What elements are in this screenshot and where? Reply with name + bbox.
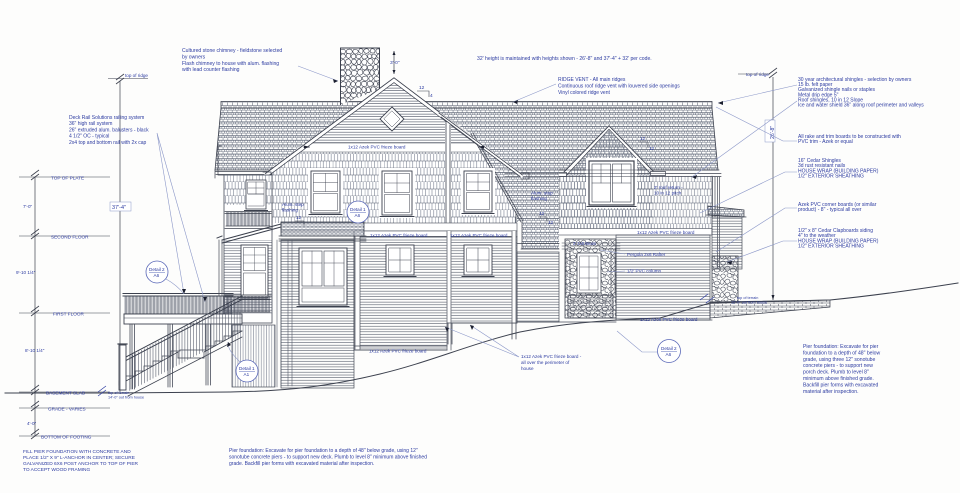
svg-text:material after inspection.: material after inspection. [803, 389, 859, 395]
svg-text:1x12 Azek PVC frieze board: 1x12 Azek PVC frieze board [450, 233, 508, 238]
svg-text:SECOND FLOOR: SECOND FLOOR [51, 235, 89, 240]
svg-text:Alum. step: Alum. step [531, 191, 553, 196]
svg-text:A6: A6 [355, 213, 361, 218]
svg-text:4: 4 [430, 93, 433, 99]
svg-text:house: house [521, 366, 534, 371]
svg-text:top of ridge: top of ridge [746, 72, 769, 77]
svg-text:flashing: flashing [531, 196, 547, 201]
svg-text:Detail 2: Detail 2 [149, 267, 165, 272]
svg-text:Continuous roof ridge vent wit: Continuous roof ridge vent with louvered… [558, 83, 680, 89]
svg-text:Backfill pier forms with excav: Backfill pier forms with excavated [803, 382, 878, 388]
svg-text:4'-0": 4'-0" [27, 421, 37, 426]
svg-text:1x12 Azek PVC frieze board: 1x12 Azek PVC frieze board [637, 230, 695, 235]
svg-text:with lead counter flashing: with lead counter flashing [182, 67, 240, 73]
svg-text:minimum above finished grade.: minimum above finished grade. [803, 376, 874, 382]
svg-text:TO ACCEPT WOOD FRAMING: TO ACCEPT WOOD FRAMING [23, 467, 91, 473]
svg-text:product) - 8" - typical all ov: product) - 8" - typical all over [798, 207, 862, 213]
svg-text:3'-0": 3'-0" [390, 60, 400, 66]
svg-text:37'-4": 37'-4" [112, 205, 126, 211]
svg-text:Detail 1: Detail 1 [239, 366, 255, 371]
svg-text:A6: A6 [154, 273, 160, 278]
svg-text:top of terrain: top of terrain [108, 391, 129, 395]
svg-text:10 in 12 pitch: 10 in 12 pitch [654, 191, 682, 196]
svg-text:Detail 1: Detail 1 [350, 207, 366, 212]
svg-text:concrete piers - to support ne: concrete piers - to support new [803, 363, 873, 369]
svg-text:grade, using three 12" sonotub: grade, using three 12" sonotube [803, 357, 875, 363]
svg-text:A1: A1 [244, 372, 250, 377]
svg-text:1x12 Azek PVC frieze board: 1x12 Azek PVC frieze board [370, 233, 428, 238]
svg-text:12'-0" out from house: 12'-0" out from house [731, 301, 767, 305]
svg-text:36" high rail system: 36" high rail system [69, 121, 112, 127]
svg-text:PLACE 1/2" X 9" L-ANCHOR IN CE: PLACE 1/2" X 9" L-ANCHOR IN CENTER; SECU… [23, 455, 135, 461]
svg-text:2' 2x6 Beam: 2' 2x6 Beam [573, 241, 597, 246]
svg-text:Ice and water shield 36" along: Ice and water shield 36" along roof peri… [798, 103, 924, 109]
svg-text:Vinyl colored ridge vent: Vinyl colored ridge vent [558, 90, 610, 96]
svg-text:1x12 Azek PVC frieze board: 1x12 Azek PVC frieze board [348, 145, 406, 150]
svg-text:3' roof return -: 3' roof return - [654, 185, 683, 190]
svg-text:porch deck. Plumb to level 8": porch deck. Plumb to level 8" [803, 370, 869, 376]
svg-text:PVC trim - Azek or equal: PVC trim - Azek or equal [798, 139, 853, 145]
svg-text:1/2' PVC column: 1/2' PVC column [627, 269, 662, 274]
svg-text:Deck Rail Solutions railing sy: Deck Rail Solutions railing system [69, 115, 144, 121]
svg-text:FILL PIER FOUNDATION WITH CONC: FILL PIER FOUNDATION WITH CONCRETE AND [23, 449, 131, 455]
svg-text:4 1/2" OC - typical: 4 1/2" OC - typical [69, 134, 109, 140]
svg-text:26" extruded alum. balusters -: 26" extruded alum. balusters - black [69, 127, 149, 133]
svg-text:top of ridge: top of ridge [125, 73, 148, 78]
svg-text:sonotube concrete piers - to s: sonotube concrete piers - to support new… [229, 454, 427, 460]
svg-text:grade. Backfill pier forms wi: grade. Backfill pier forms with excavate… [229, 461, 374, 467]
svg-text:Pier foundation: Excavate for: Pier foundation: Excavate for pier [803, 344, 879, 350]
svg-text:2x4 top and bottom rail with 2: 2x4 top and bottom rail with 2x cap [69, 140, 146, 146]
svg-text:Alum. step: Alum. step [282, 202, 304, 207]
svg-text:12: 12 [640, 136, 646, 141]
svg-text:GALVANIZED 6X6 POST ANCHOR TO: GALVANIZED 6X6 POST ANCHOR TO TOP OF PIE… [23, 461, 139, 467]
svg-text:1x12 Azek PVC frieze board: 1x12 Azek PVC frieze board [640, 317, 698, 322]
svg-text:1x12 Azek PVC frieze board: 1x12 Azek PVC frieze board [369, 349, 427, 354]
svg-text:Flash chimney to house with al: Flash chimney to house with alum. flashi… [182, 61, 279, 67]
svg-text:A6: A6 [666, 352, 672, 357]
svg-text:Pergola 2x6 Rafter: Pergola 2x6 Rafter [627, 252, 666, 257]
svg-text:8'-10 1/4": 8'-10 1/4" [25, 348, 45, 353]
svg-text:all over the perimeter of: all over the perimeter of [521, 360, 570, 365]
svg-text:BOTTOM OF FOOTING: BOTTOM OF FOOTING [41, 435, 92, 440]
svg-text:32' height is maintained with: 32' height is maintained with heights sh… [477, 56, 652, 62]
svg-text:RIDGE VENT - All main ridges: RIDGE VENT - All main ridges [558, 77, 626, 83]
svg-text:12: 12 [539, 211, 545, 216]
svg-text:12: 12 [296, 215, 302, 220]
svg-text:FIRST FLOOR: FIRST FLOOR [53, 312, 85, 317]
svg-text:12: 12 [649, 146, 655, 151]
svg-text:GRADE - VARIES: GRADE - VARIES [48, 407, 86, 412]
svg-text:Pier foundation: Excavate for: Pier foundation: Excavate for pier found… [229, 448, 418, 454]
svg-text:9'-10 1/4": 9'-10 1/4" [16, 270, 36, 275]
svg-text:14'-0" out from house: 14'-0" out from house [108, 396, 144, 400]
svg-text:1/2" EXTERIOR SHEATHING: 1/2" EXTERIOR SHEATHING [798, 244, 864, 250]
svg-text:by owners: by owners [182, 54, 206, 60]
svg-text:top of terrain: top of terrain [737, 296, 758, 300]
svg-text:1x12 Azek PVC frieze board -: 1x12 Azek PVC frieze board - [521, 354, 582, 359]
svg-text:Cultured stone chimney - field: Cultured stone chimney - fieldstone sele… [182, 48, 282, 54]
svg-text:BASEMENT SLAB: BASEMENT SLAB [46, 391, 85, 396]
svg-text:1/2" EXTERIOR SHEATHING: 1/2" EXTERIOR SHEATHING [798, 174, 864, 180]
svg-text:flashing: flashing [282, 208, 298, 213]
svg-text:Detail 2: Detail 2 [661, 346, 677, 351]
svg-text:7'-0": 7'-0" [23, 204, 33, 209]
svg-text:foundation to a depth of 48" b: foundation to a depth of 48" below [803, 350, 880, 356]
svg-text:12: 12 [548, 220, 554, 225]
svg-text:TOP OF PLATE: TOP OF PLATE [51, 176, 84, 181]
svg-text:12: 12 [419, 85, 425, 91]
